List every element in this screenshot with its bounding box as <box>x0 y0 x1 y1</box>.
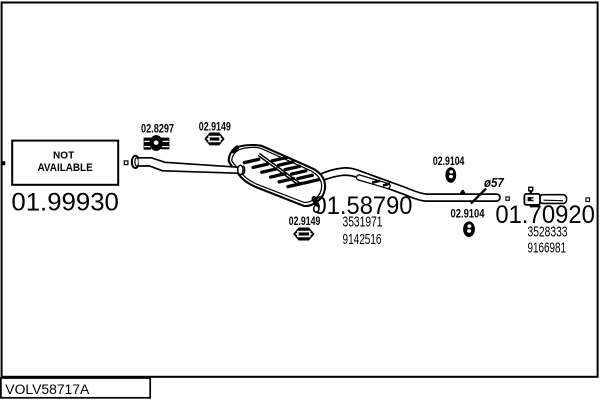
svg-text:VOLV58717A: VOLV58717A <box>5 382 90 398</box>
svg-text:02.9104: 02.9104 <box>433 154 465 168</box>
svg-text:NOT: NOT <box>53 151 74 162</box>
svg-text:02.9149: 02.9149 <box>289 214 321 228</box>
svg-text:3528333: 3528333 <box>528 225 568 241</box>
svg-text:02.9149: 02.9149 <box>199 120 231 134</box>
svg-text:AVAILABLE: AVAILABLE <box>38 162 93 174</box>
svg-text:9142516: 9142516 <box>343 232 382 248</box>
svg-text:02.8297: 02.8297 <box>141 121 174 135</box>
svg-text:9166981: 9166981 <box>528 240 567 256</box>
svg-text:ø57: ø57 <box>484 175 504 190</box>
svg-text:3531971: 3531971 <box>343 214 383 230</box>
svg-text:01.99930: 01.99930 <box>11 188 119 216</box>
svg-text:02.9104: 02.9104 <box>451 207 485 221</box>
